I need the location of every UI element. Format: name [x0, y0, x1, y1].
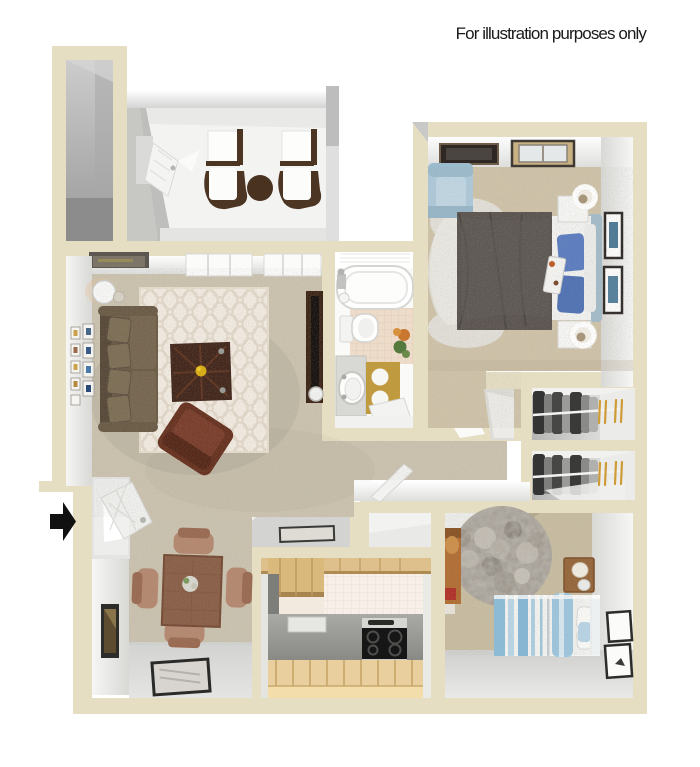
svg-text:For illustration purposes only: For illustration purposes only: [456, 24, 648, 43]
